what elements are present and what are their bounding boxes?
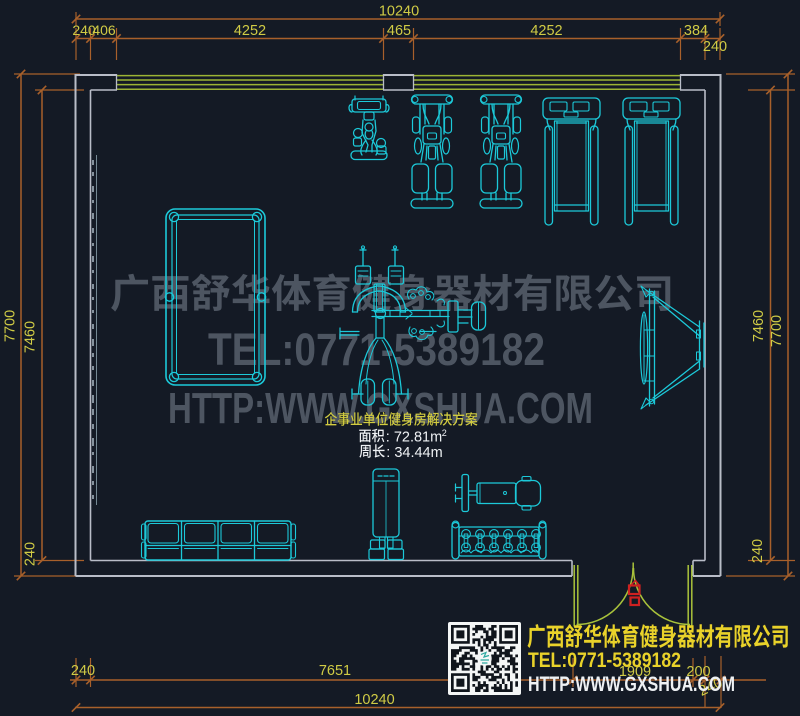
svg-text:4252: 4252 — [234, 23, 266, 39]
svg-text:4252: 4252 — [530, 23, 562, 39]
svg-text:: 34.44m: : 34.44m — [386, 445, 442, 461]
svg-text:7460: 7460 — [23, 321, 39, 353]
svg-text:240: 240 — [750, 539, 766, 563]
svg-text:2: 2 — [442, 428, 447, 438]
svg-text:HTTP:WWW.GXSHUA.COM: HTTP:WWW.GXSHUA.COM — [168, 384, 593, 433]
svg-text:10240: 10240 — [354, 692, 394, 708]
svg-text:7700: 7700 — [3, 310, 19, 342]
svg-text:240: 240 — [703, 39, 727, 55]
svg-text:HTTP:WWW.GXSHUA.COM: HTTP:WWW.GXSHUA.COM — [528, 672, 735, 696]
svg-text:7460: 7460 — [751, 310, 767, 342]
svg-text:10240: 10240 — [379, 4, 419, 20]
svg-text:: 72.81m: : 72.81m — [386, 430, 442, 446]
svg-text:TEL:0771-5389182: TEL:0771-5389182 — [528, 648, 681, 672]
svg-text:384: 384 — [684, 23, 708, 39]
svg-text:240: 240 — [71, 663, 95, 679]
svg-text:465: 465 — [387, 23, 411, 39]
svg-text:406: 406 — [92, 22, 116, 38]
svg-text:240: 240 — [23, 542, 39, 566]
svg-text:7700: 7700 — [769, 315, 785, 347]
svg-text:7651: 7651 — [319, 663, 351, 679]
